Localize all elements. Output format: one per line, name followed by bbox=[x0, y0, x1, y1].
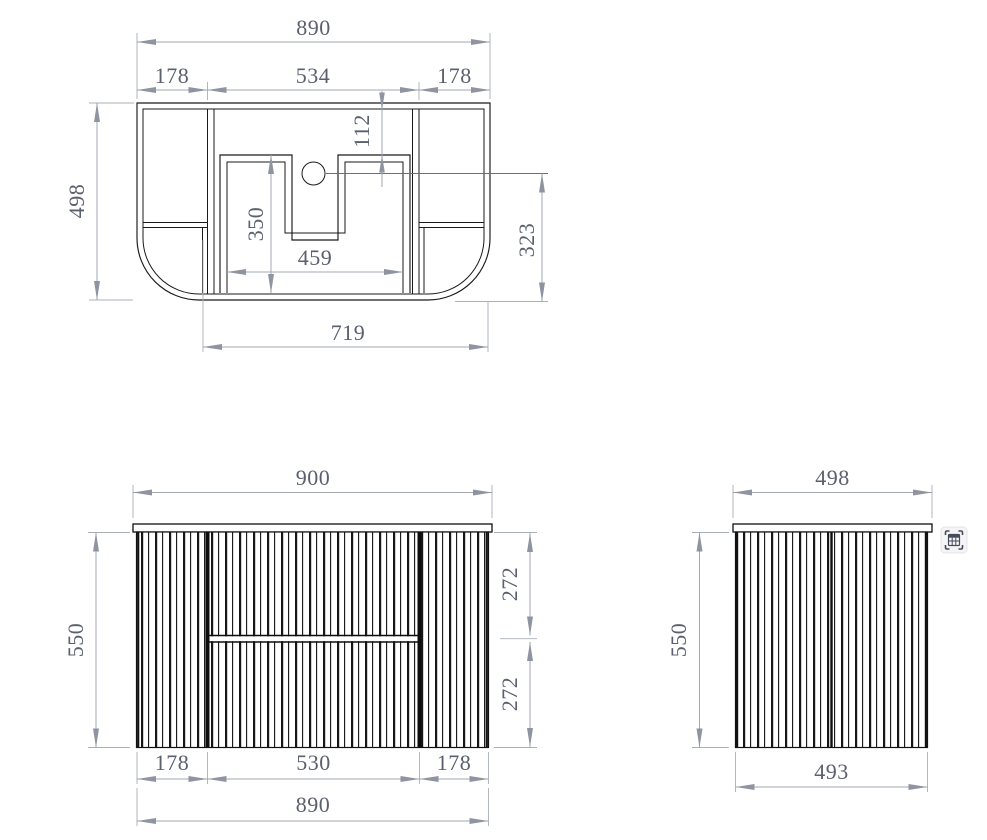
plan-outer-outline bbox=[137, 103, 490, 300]
front-countertop bbox=[133, 524, 492, 532]
front-dim-272-upper-label: 272 bbox=[497, 567, 522, 602]
front-dim-530-label: 530 bbox=[296, 750, 331, 775]
front-dim-272-lower-label: 272 bbox=[497, 677, 522, 712]
front-drawer-gap bbox=[210, 636, 418, 641]
plan-dim-basin-front-depth: 323 bbox=[455, 174, 548, 302]
front-dim-overall-width: 900 bbox=[133, 465, 492, 518]
plan-right-divider bbox=[413, 109, 420, 294]
plan-dim-459-label: 459 bbox=[298, 245, 333, 270]
plan-dim-178-right-label: 178 bbox=[437, 63, 472, 88]
plan-dim-323-label: 323 bbox=[514, 223, 539, 258]
front-dim-178-left-label: 178 bbox=[155, 750, 190, 775]
plan-dim-178-left-label: 178 bbox=[155, 63, 190, 88]
plan-dim-tap-setback: 112 bbox=[349, 91, 385, 187]
plan-dim-section-chain: 178 534 178 bbox=[137, 63, 490, 100]
technical-drawing-page: 890 178 534 178 112 498 350 bbox=[0, 0, 987, 840]
side-view: 498 550 493 bbox=[666, 465, 932, 792]
plan-left-divider bbox=[208, 109, 215, 294]
plan-dim-498-label: 498 bbox=[64, 184, 89, 219]
plan-right-shelf bbox=[419, 223, 484, 294]
plan-dim-890-label: 890 bbox=[296, 15, 331, 40]
front-dim-section-chain: 178 530 178 bbox=[137, 750, 489, 784]
side-dim-498-label: 498 bbox=[815, 465, 850, 490]
plan-dim-534-label: 534 bbox=[296, 63, 331, 88]
front-dim-height: 550 bbox=[63, 533, 130, 748]
plan-dim-overall-depth: 498 bbox=[64, 103, 134, 300]
front-view: 900 550 272 272 178 530 178 bbox=[63, 465, 537, 826]
plan-dim-350-label: 350 bbox=[243, 207, 268, 242]
plan-dim-719-label: 719 bbox=[331, 320, 366, 345]
side-countertop bbox=[733, 524, 932, 532]
front-dim-drawer-heights: 272 272 bbox=[494, 533, 537, 748]
plan-dim-recess-width: 459 bbox=[227, 245, 403, 272]
front-dim-178-right-label: 178 bbox=[437, 750, 472, 775]
side-dim-height: 550 bbox=[666, 533, 729, 748]
plan-dim-112-label: 112 bbox=[349, 114, 374, 148]
front-dim-550-label: 550 bbox=[63, 623, 88, 658]
front-dim-900-label: 900 bbox=[296, 465, 331, 490]
table-capture-icon[interactable] bbox=[941, 527, 967, 553]
plan-left-shelf bbox=[143, 223, 208, 294]
top-view-plan: 890 178 534 178 112 498 350 bbox=[64, 15, 548, 352]
plan-dim-base-width: 719 bbox=[203, 240, 488, 352]
side-dim-550-label: 550 bbox=[666, 623, 691, 658]
side-dim-bottom-width: 493 bbox=[736, 752, 928, 792]
front-dim-890-label: 890 bbox=[296, 792, 331, 817]
side-dim-top-width: 498 bbox=[733, 465, 932, 518]
side-dim-493-label: 493 bbox=[814, 759, 849, 784]
plan-tap-hole bbox=[302, 162, 325, 185]
vanity-dimension-drawing: 890 178 534 178 112 498 350 bbox=[0, 0, 987, 840]
front-dim-carcass-width: 890 bbox=[137, 788, 489, 826]
